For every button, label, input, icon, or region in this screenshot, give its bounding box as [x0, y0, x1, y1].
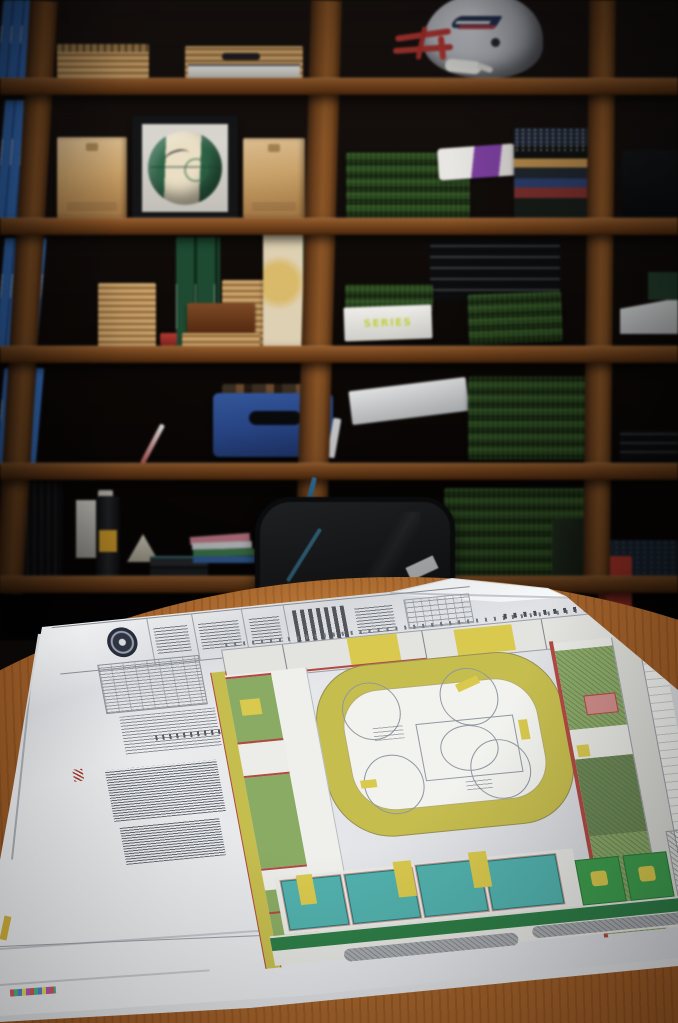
binder-clip: [222, 53, 260, 60]
photograph-scene: SERIES: [0, 0, 678, 1023]
basketball-logo: [184, 158, 208, 182]
shelf-board-3: [0, 346, 678, 363]
schedule-table: [97, 655, 208, 714]
color-swatch-fan: [190, 533, 256, 563]
white-carton: [76, 500, 96, 558]
east-pink-room: [583, 692, 619, 715]
fabric-speckle-overlay: [514, 128, 590, 152]
general-notes-2: [119, 818, 226, 865]
turf-stack-row4-right: [468, 376, 588, 460]
court-b-yellow-key: [638, 866, 657, 882]
infield-mark-lines-1: [372, 724, 404, 741]
wood-slat-stack-row3-left: [98, 283, 156, 347]
yellow-bar-3: [360, 779, 377, 788]
black-bottle: [96, 496, 120, 576]
court-a-yellow-key: [590, 870, 609, 886]
wooden-box: [187, 303, 255, 333]
teal-room-4: [484, 854, 565, 910]
general-notes-1: [105, 760, 226, 822]
bottle-yellow-label: [99, 530, 117, 552]
chair-mesh-pen-reflection: [286, 528, 322, 583]
helmet-logo-stripe-white: [455, 21, 491, 24]
shelf-board-1: [0, 78, 678, 95]
dark-pile-far-right-row2: [622, 150, 678, 218]
west-yellow-subroom: [240, 698, 263, 716]
wood-sample-stack-1-top: [57, 44, 149, 52]
case-handle-slot: [249, 411, 301, 425]
north-yellow-room-2: [453, 624, 516, 655]
title-divider-2: [191, 614, 200, 659]
red-cup: [160, 333, 177, 347]
dark-slats-far-right-row4: [620, 430, 678, 460]
series-box-label: SERIES: [364, 317, 413, 330]
dark-green-book-far-right: [648, 272, 678, 300]
shelf-board-2: [0, 218, 678, 235]
turf-stack-row3-right: [467, 291, 563, 344]
floor-plan: [205, 601, 678, 985]
north-wall-2: [421, 631, 428, 661]
title-divider-1: [146, 619, 155, 664]
title-text-group-1: [153, 625, 192, 654]
basketball-display-case: [132, 116, 238, 220]
football-helmet: [393, 0, 545, 80]
east-yellow-bit: [576, 744, 590, 757]
wood-slab-under-box: [182, 333, 260, 347]
wrapped-sample-purple: [437, 143, 517, 180]
north-wall-3: [541, 619, 548, 649]
wood-plaque-right: [243, 138, 305, 218]
wood-plaque-left: [57, 137, 127, 218]
red-stamp-mark: [72, 769, 84, 782]
architect-seal: [105, 626, 140, 659]
swatch-blue: [193, 556, 255, 563]
dark-slats-row3-right: [430, 240, 560, 300]
helmet-logo-stripe-red: [458, 25, 496, 29]
helmet-earhole: [491, 38, 500, 47]
series-box: SERIES: [343, 304, 432, 341]
